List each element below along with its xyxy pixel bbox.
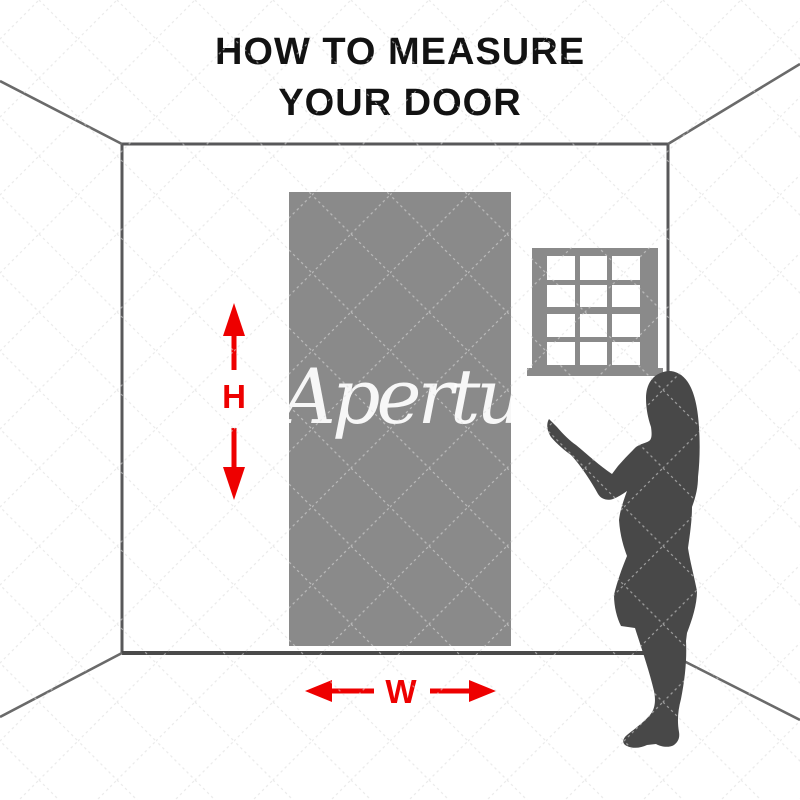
width-arrow-right-head bbox=[469, 680, 496, 702]
window-sill bbox=[527, 368, 663, 376]
window-pane bbox=[612, 313, 640, 337]
height-arrow-down-head bbox=[223, 467, 245, 500]
window-pane bbox=[580, 256, 608, 280]
woman-silhouette-shape bbox=[547, 371, 699, 748]
height-arrow-up-head bbox=[223, 303, 245, 336]
window bbox=[532, 248, 658, 368]
width-label: W bbox=[381, 675, 421, 709]
height-label: H bbox=[214, 380, 254, 414]
window-pane bbox=[580, 313, 608, 337]
window-pane bbox=[612, 285, 640, 309]
window-pane bbox=[547, 256, 575, 280]
window-pane bbox=[612, 342, 640, 366]
page-title: HOW TO MEASURE YOUR DOOR bbox=[0, 27, 800, 129]
door: Aperture bbox=[289, 192, 511, 646]
watermark-text: Aperture bbox=[289, 342, 511, 452]
window-pane bbox=[612, 256, 640, 280]
window-pane bbox=[547, 313, 575, 337]
window-pane bbox=[547, 342, 575, 366]
window-pane bbox=[580, 342, 608, 366]
diagram-canvas: HOW TO MEASURE YOUR DOOR Aperture H W bbox=[0, 0, 800, 800]
window-sash-bar bbox=[547, 307, 640, 314]
width-arrow-left-head bbox=[305, 680, 332, 702]
floor-left-ray bbox=[0, 653, 122, 717]
title-line-1: HOW TO MEASURE bbox=[0, 27, 800, 78]
window-pane bbox=[547, 285, 575, 309]
title-line-2: YOUR DOOR bbox=[0, 78, 800, 129]
floor-right-ray bbox=[668, 653, 800, 720]
window-pane bbox=[580, 285, 608, 309]
